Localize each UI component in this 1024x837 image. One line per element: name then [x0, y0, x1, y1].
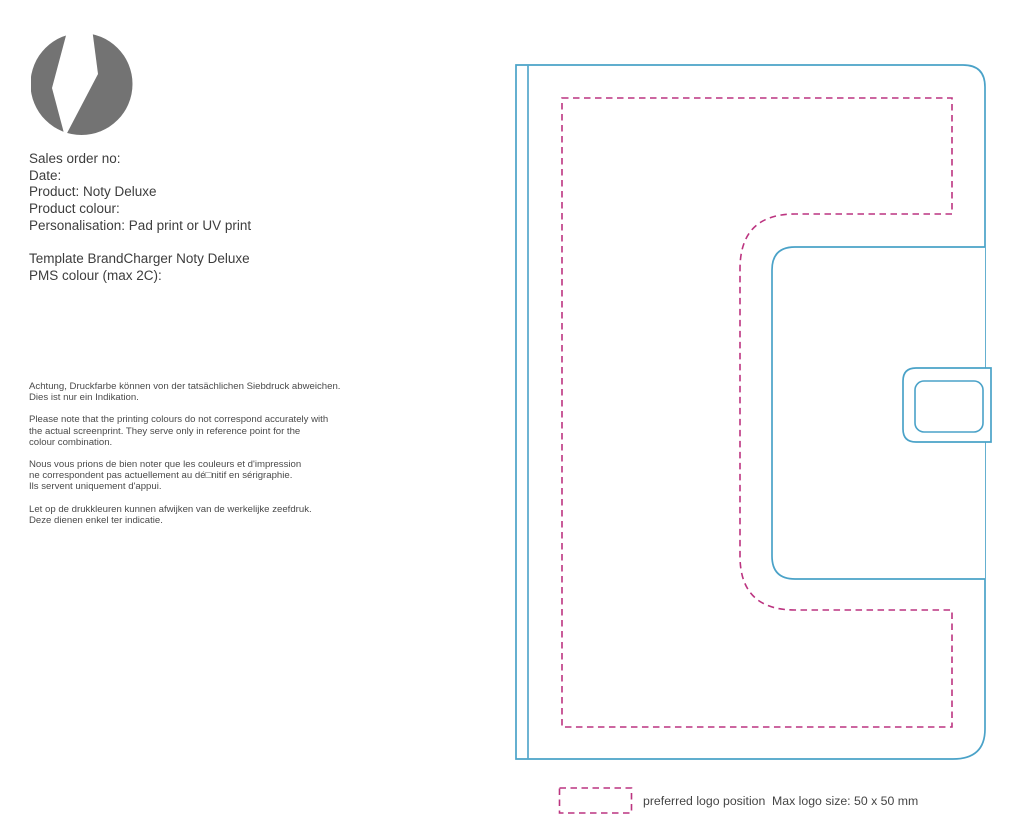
notebook-template-drawing [500, 50, 1010, 770]
legend-max-logo-size: Max logo size: 50 x 50 mm [772, 794, 918, 808]
template-info-block: Template BrandCharger Noty Deluxe PMS co… [29, 251, 250, 284]
disclaimer-en-line2: the actual screenprint. They serve only … [29, 426, 369, 437]
sales-order-line: Sales order no: [29, 151, 251, 168]
product-colour-line: Product colour: [29, 201, 251, 218]
disclaimer-en-line3: colour combination. [29, 437, 369, 448]
disclaimer-german: Achtung, Druckfarbe können von der tatsä… [29, 381, 369, 403]
date-line: Date: [29, 168, 251, 185]
clasp-inner [915, 381, 983, 432]
disclaimer-nl-line1: Let op de drukkleuren kunnen afwijken va… [29, 504, 369, 515]
disclaimer-en-line1: Please note that the printing colours do… [29, 414, 369, 425]
disclaimer-fr-line2: ne correspondent pas actuellement au dé□… [29, 470, 369, 481]
template-name-line: Template BrandCharger Noty Deluxe [29, 251, 250, 268]
disclaimer-english: Please note that the printing colours do… [29, 414, 369, 448]
order-info-block: Sales order no: Date: Product: Noty Delu… [29, 151, 251, 235]
legend-label: preferred logo position [643, 794, 765, 808]
personalisation-line: Personalisation: Pad print or UV print [29, 218, 251, 235]
brandcharger-logo [31, 27, 134, 141]
disclaimer-fr-line1: Nous vous prions de bien noter que les c… [29, 459, 369, 470]
disclaimer-block: Achtung, Druckfarbe können von der tatsä… [29, 381, 369, 537]
disclaimer-nl-line2: Deze dienen enkel ter indicatie. [29, 515, 369, 526]
disclaimer-fr-line3: Ils servent uniquement d'appui. [29, 481, 369, 492]
legend-swatch [558, 786, 634, 815]
disclaimer-de-line1: Achtung, Druckfarbe können von der tatsä… [29, 381, 369, 392]
disclaimer-french: Nous vous prions de bien noter que les c… [29, 459, 369, 493]
product-line: Product: Noty Deluxe [29, 184, 251, 201]
pms-colour-line: PMS colour (max 2C): [29, 268, 250, 285]
disclaimer-de-line2: Dies ist nur ein Indikation. [29, 392, 369, 403]
legend-dashed-rect [560, 788, 632, 813]
disclaimer-dutch: Let op de drukkleuren kunnen afwijken va… [29, 504, 369, 526]
